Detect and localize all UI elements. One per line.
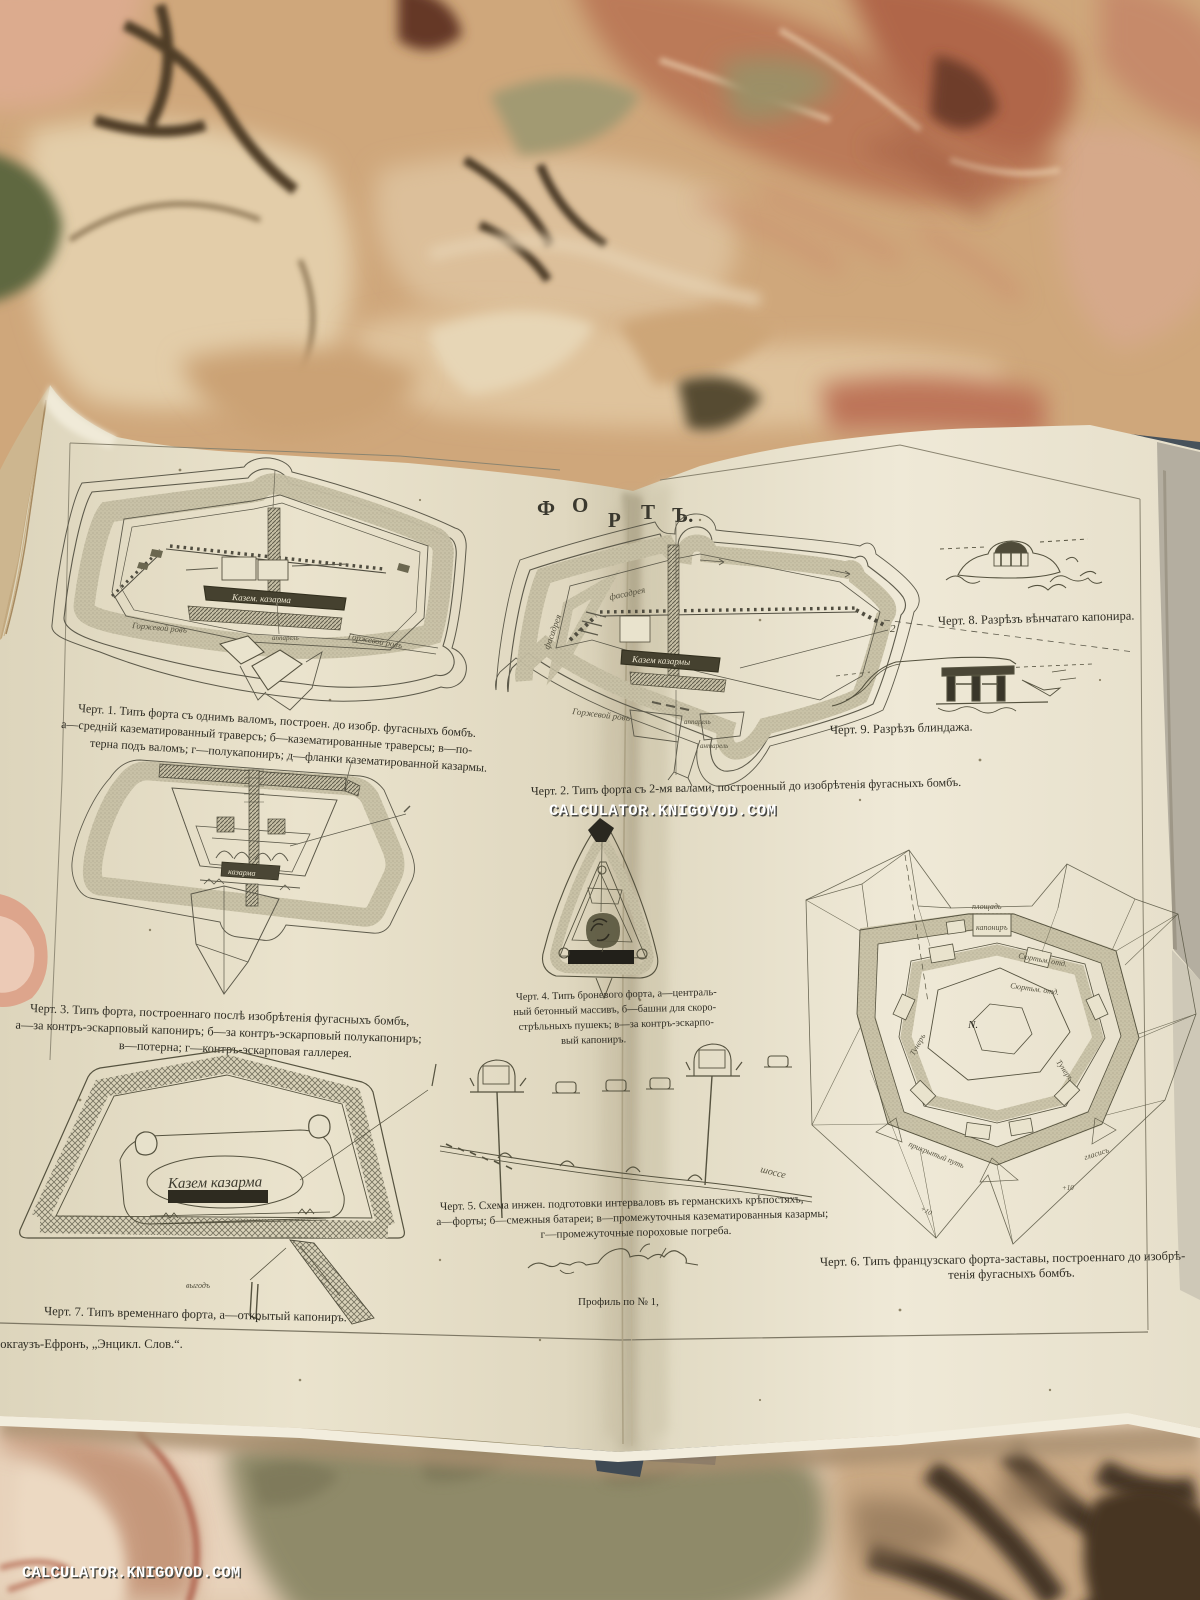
svg-text:вый капониръ.: вый капониръ. [561, 1034, 626, 1047]
svg-text:CALCULATOR.KNIGOVOD.COM: CALCULATOR.KNIGOVOD.COM [22, 1564, 241, 1582]
svg-text:рокгаузъ-Ефронъ, „Энцикл. Слов: рокгаузъ-Ефронъ, „Энцикл. Слов.“. [0, 1337, 183, 1351]
svg-text:казарма: казарма [228, 867, 256, 878]
svg-text:выгодъ: выгодъ [186, 1281, 210, 1290]
svg-text:Р: Р [608, 508, 621, 532]
svg-text:+10: +10 [1062, 1184, 1074, 1192]
svg-text:N.: N. [967, 1019, 978, 1031]
svg-text:аппарель: аппарель [272, 634, 299, 642]
svg-text:площадь: площадь [972, 902, 1002, 911]
svg-text:О: О [572, 493, 588, 517]
svg-text:антарель: антарель [700, 742, 728, 750]
svg-text:капониръ: капониръ [976, 923, 1008, 932]
svg-text:2: 2 [890, 623, 896, 635]
svg-text:Ф: Ф [537, 496, 555, 520]
svg-text:CALCULATOR.KNIGOVOD.COM: CALCULATOR.KNIGOVOD.COM [549, 802, 777, 820]
svg-text:тенія фугасныхъ бомбъ.: тенія фугасныхъ бомбъ. [948, 1266, 1075, 1282]
svg-text:Профиль по № 1,: Профиль по № 1, [578, 1296, 659, 1308]
svg-text:аппарель: аппарель [684, 718, 711, 726]
svg-text:Казем казарма: Казем казарма [167, 1174, 263, 1192]
svg-text:Т: Т [641, 500, 655, 524]
